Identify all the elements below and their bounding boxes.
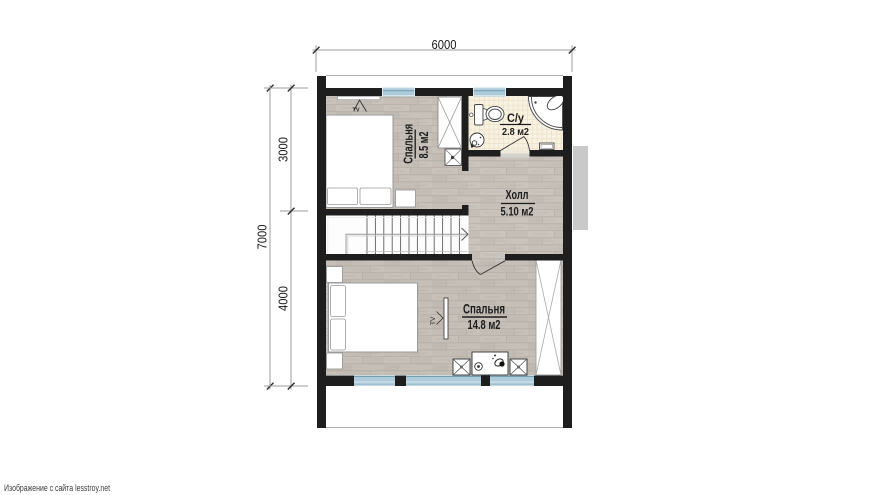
svg-text:TV: TV — [430, 316, 437, 325]
svg-text:14.8 м2: 14.8 м2 — [468, 318, 501, 332]
svg-text:7000: 7000 — [255, 225, 270, 250]
svg-text:5.10 м2: 5.10 м2 — [501, 205, 534, 219]
svg-text:6000: 6000 — [432, 37, 457, 52]
svg-text:8.5 м2: 8.5 м2 — [416, 132, 431, 159]
svg-text:Изображение с сайта lesstroy.n: Изображение с сайта lesstroy.net — [4, 483, 110, 493]
svg-text:3000: 3000 — [276, 137, 291, 162]
svg-text:TV: TV — [353, 108, 360, 114]
svg-text:2.8 м2: 2.8 м2 — [502, 126, 529, 138]
svg-text:Холл: Холл — [506, 188, 529, 202]
svg-text:Спальня: Спальня — [401, 124, 416, 164]
svg-text:Спальня: Спальня — [463, 302, 505, 317]
svg-text:4000: 4000 — [276, 286, 291, 311]
svg-text:С/у: С/у — [507, 111, 524, 125]
